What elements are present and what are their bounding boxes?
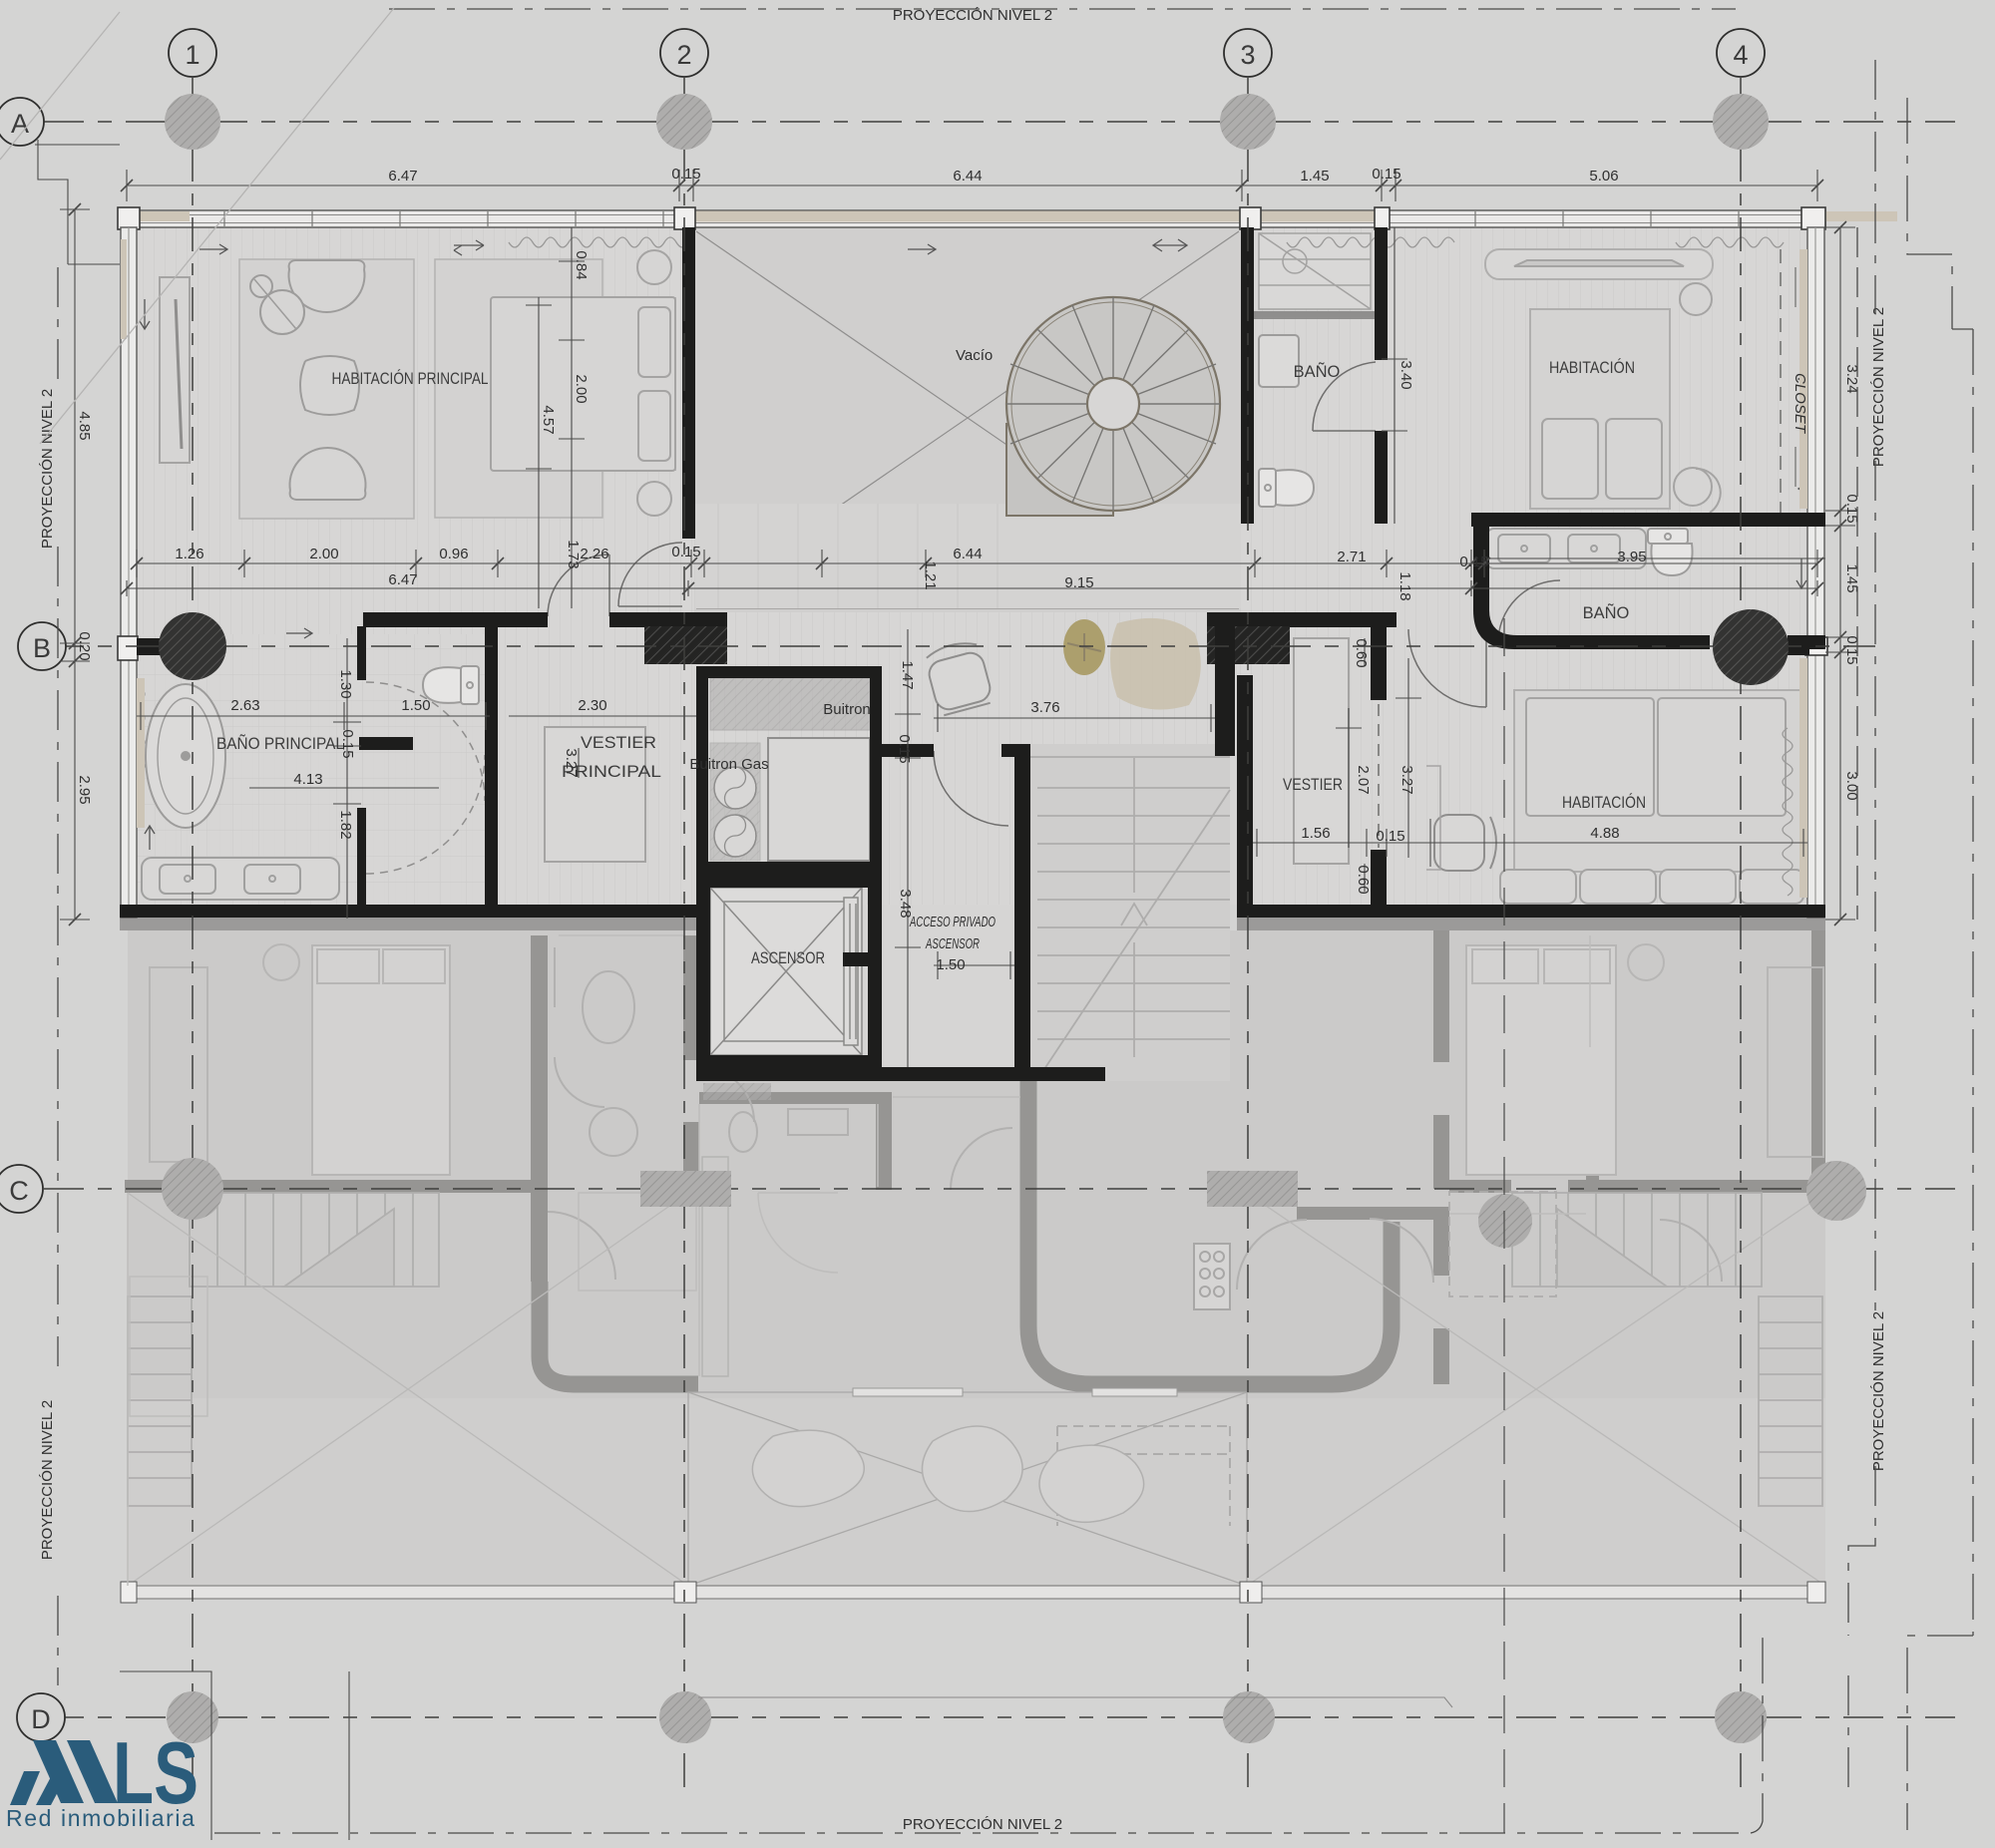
svg-text:3.27: 3.27 [1398, 765, 1415, 794]
svg-text:D: D [31, 1704, 51, 1734]
svg-text:2.30: 2.30 [578, 697, 606, 714]
svg-text:1.45: 1.45 [1300, 168, 1329, 185]
svg-text:2.95: 2.95 [76, 775, 93, 804]
svg-text:5.06: 5.06 [1589, 168, 1618, 185]
svg-text:0.15: 0.15 [339, 729, 356, 758]
svg-text:0.15: 0.15 [671, 166, 700, 183]
svg-text:0.60: 0.60 [1355, 865, 1372, 894]
svg-text:0.15: 0.15 [896, 734, 913, 763]
svg-text:4.57: 4.57 [540, 405, 557, 434]
svg-text:Buitron Gas: Buitron Gas [689, 756, 768, 773]
svg-text:1: 1 [185, 40, 199, 70]
svg-text:HABITACIÓN: HABITACIÓN [1562, 793, 1646, 812]
svg-text:Red inmobiliaria: Red inmobiliaria [6, 1805, 197, 1831]
svg-text:0.15: 0.15 [1459, 554, 1488, 570]
svg-text:0.15: 0.15 [1372, 166, 1400, 183]
svg-text:2.63: 2.63 [230, 697, 259, 714]
svg-text:C: C [9, 1176, 29, 1206]
svg-text:6.47: 6.47 [388, 571, 417, 588]
svg-text:1.50: 1.50 [401, 697, 430, 714]
svg-text:0.96: 0.96 [439, 546, 468, 562]
svg-text:ASCENSOR: ASCENSOR [751, 949, 825, 967]
svg-text:BAÑO PRINCIPAL: BAÑO PRINCIPAL [216, 733, 344, 753]
svg-text:2: 2 [676, 40, 691, 70]
svg-text:3.27: 3.27 [563, 748, 580, 777]
svg-text:6.47: 6.47 [388, 168, 417, 185]
svg-text:0.15: 0.15 [1376, 828, 1404, 845]
svg-text:PROYECCIÓN NIVEL 2: PROYECCIÓN NIVEL 2 [1870, 307, 1887, 467]
svg-text:4: 4 [1733, 40, 1748, 70]
svg-text:0.20: 0.20 [76, 631, 93, 660]
svg-text:9.15: 9.15 [1064, 574, 1093, 591]
svg-text:Vacío: Vacío [956, 347, 993, 364]
svg-text:HABITACIÓN: HABITACIÓN [1549, 358, 1635, 377]
svg-text:4.85: 4.85 [76, 411, 93, 440]
svg-text:ACCESO PRIVADO: ACCESO PRIVADO [909, 914, 996, 930]
svg-text:PROYECCIÓN NIVEL 2: PROYECCIÓN NIVEL 2 [39, 1400, 56, 1560]
svg-text:VESTIER: VESTIER [581, 734, 656, 752]
svg-text:VESTIER: VESTIER [1283, 776, 1343, 794]
svg-text:2.71: 2.71 [1337, 549, 1366, 565]
svg-text:1.82: 1.82 [337, 810, 354, 839]
svg-text:4.88: 4.88 [1590, 825, 1619, 842]
svg-text:HABITACIÓN PRINCIPAL: HABITACIÓN PRINCIPAL [332, 369, 489, 388]
svg-text:Buitron: Buitron [823, 701, 871, 718]
svg-text:3.40: 3.40 [1397, 360, 1414, 389]
svg-text:6.44: 6.44 [953, 168, 982, 185]
svg-text:0.60: 0.60 [1353, 638, 1370, 667]
svg-text:0.84: 0.84 [573, 250, 590, 279]
svg-text:1.18: 1.18 [1396, 571, 1413, 600]
svg-text:PROYECCIÓN NIVEL 2: PROYECCIÓN NIVEL 2 [903, 1816, 1062, 1833]
svg-text:4.13: 4.13 [293, 771, 322, 788]
svg-text:1.21: 1.21 [922, 560, 939, 589]
svg-text:B: B [33, 633, 51, 663]
svg-text:3: 3 [1240, 40, 1255, 70]
svg-text:6.44: 6.44 [953, 546, 982, 562]
svg-text:PROYECCIÓN NIVEL 2: PROYECCIÓN NIVEL 2 [1870, 1311, 1887, 1471]
svg-text:3.76: 3.76 [1030, 699, 1059, 716]
svg-text:CLOSET: CLOSET [1792, 373, 1808, 435]
svg-text:0.15: 0.15 [671, 544, 700, 560]
svg-text:BAÑO: BAÑO [1583, 602, 1630, 622]
svg-text:2.00: 2.00 [309, 546, 338, 562]
svg-text:1.50: 1.50 [936, 956, 965, 973]
svg-text:1.56: 1.56 [1301, 825, 1330, 842]
svg-text:1.30: 1.30 [337, 669, 354, 698]
svg-text:BAÑO: BAÑO [1294, 361, 1341, 381]
svg-text:3.48: 3.48 [897, 889, 914, 918]
svg-text:2.26: 2.26 [580, 546, 608, 562]
svg-text:2.07: 2.07 [1355, 765, 1372, 794]
svg-text:3.95: 3.95 [1617, 549, 1646, 565]
svg-text:1.26: 1.26 [175, 546, 203, 562]
svg-text:PROYECCIÓN NIVEL 2: PROYECCIÓN NIVEL 2 [39, 389, 56, 549]
svg-text:ASCENSOR: ASCENSOR [925, 935, 980, 952]
svg-text:2.00: 2.00 [573, 374, 590, 403]
svg-text:1.47: 1.47 [899, 660, 916, 689]
